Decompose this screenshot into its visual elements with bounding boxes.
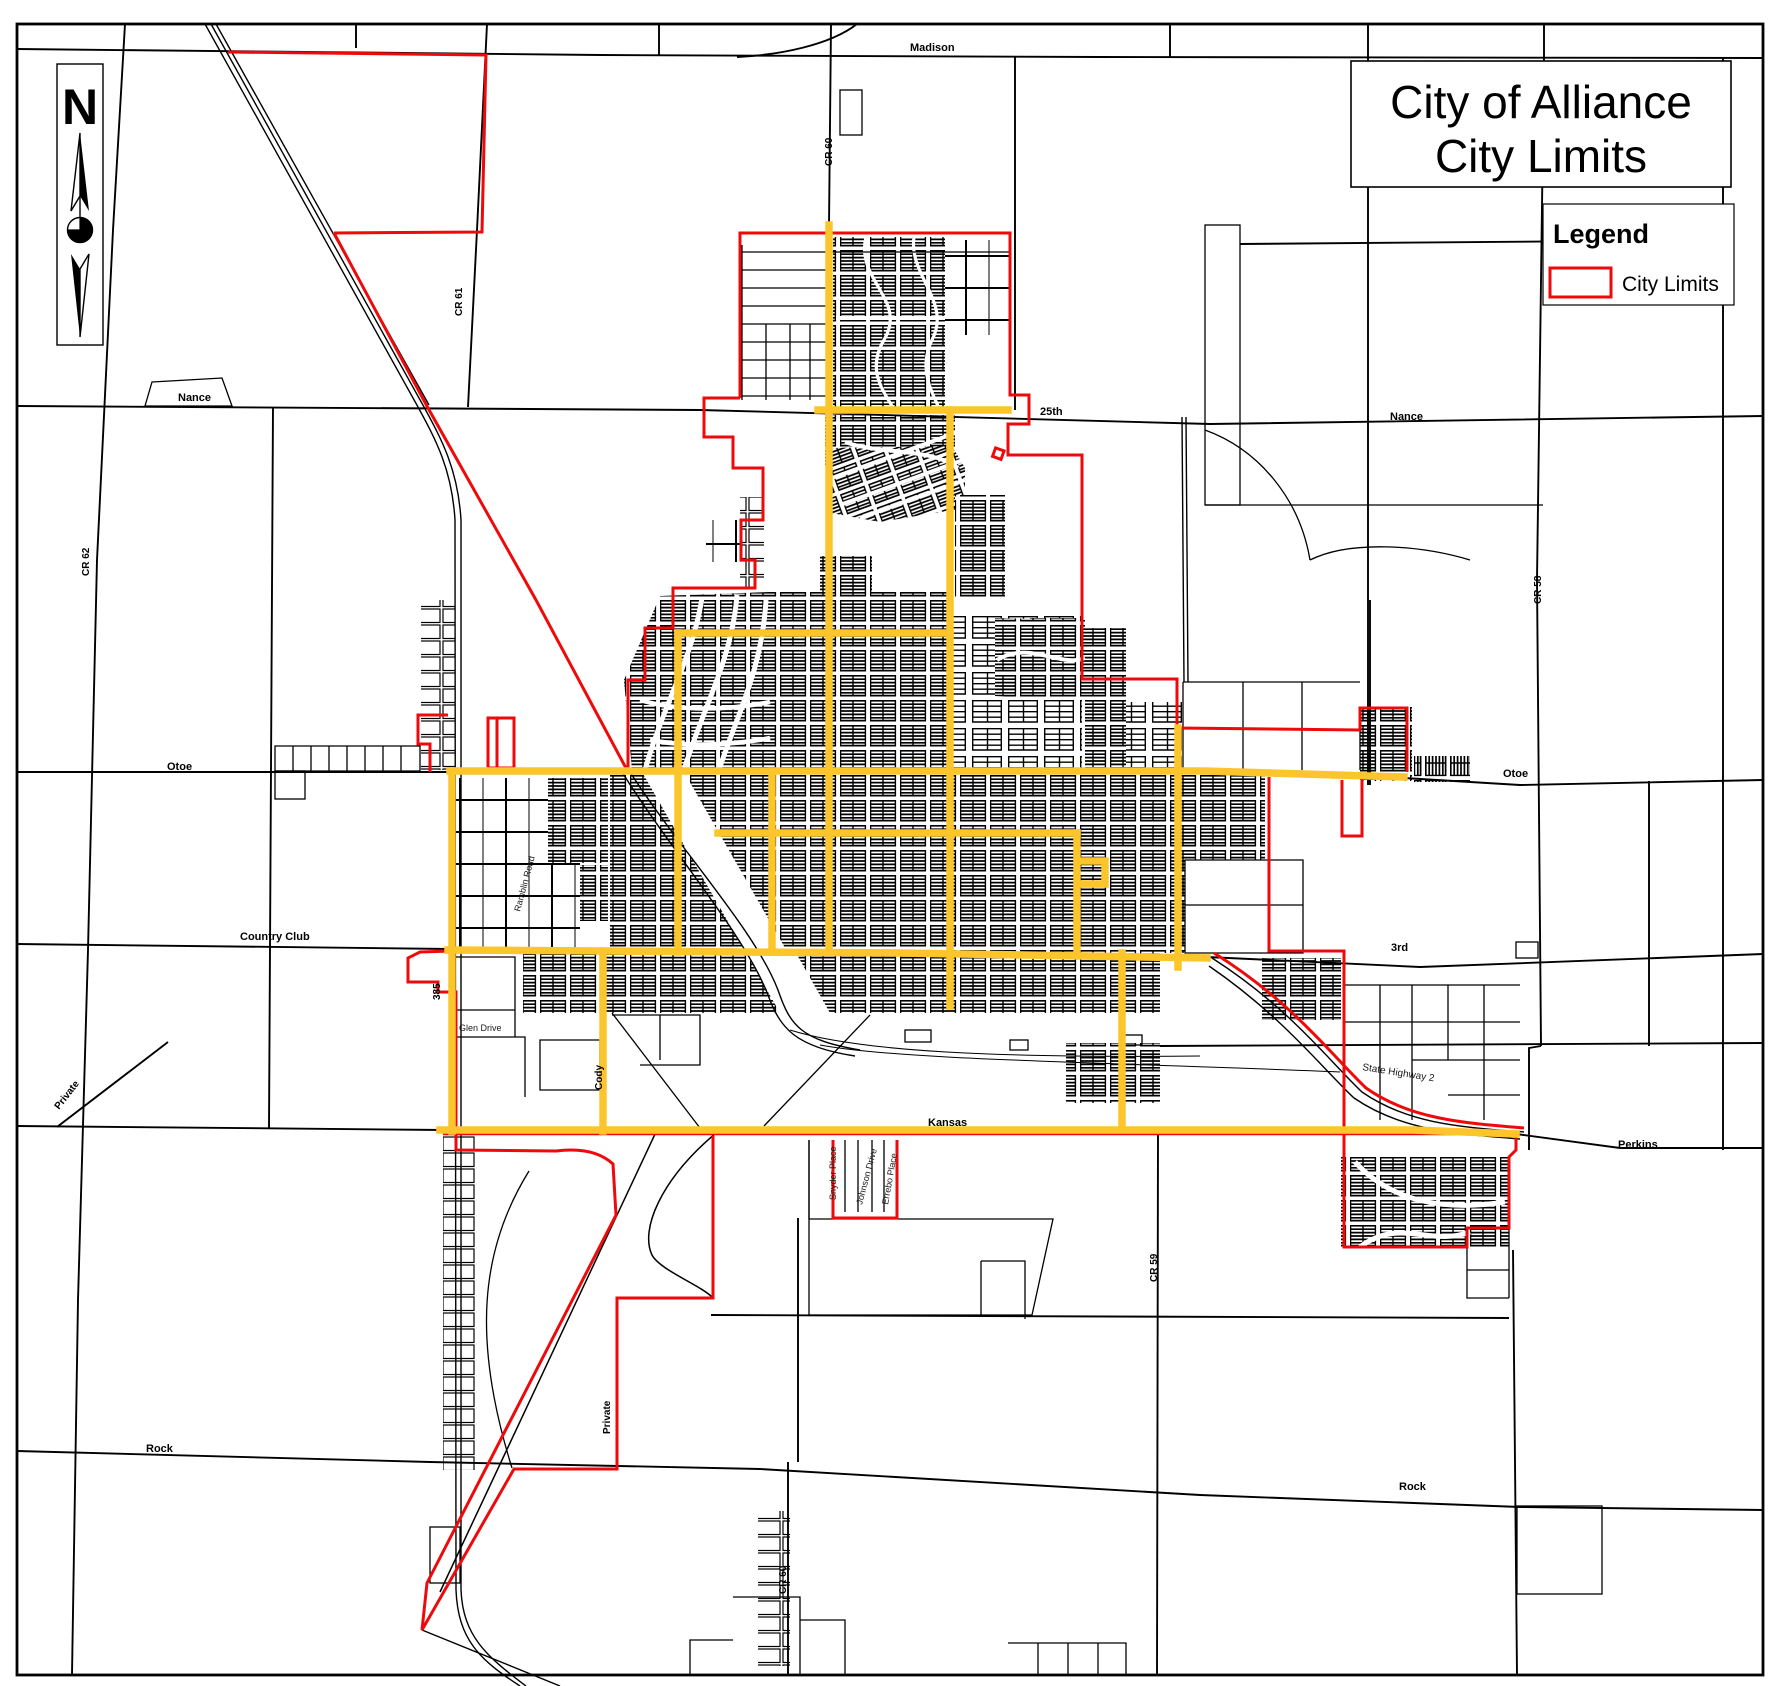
svg-text:385: 385 [432,983,443,1000]
svg-text:Kansas: Kansas [928,1117,967,1129]
svg-text:Snyder Place: Snyder Place [828,1146,838,1200]
svg-text:CR 60: CR 60 [778,1565,789,1594]
svg-text:Otoe: Otoe [1503,768,1528,780]
svg-text:Madison: Madison [910,42,955,54]
svg-text:CR 60: CR 60 [824,137,835,166]
svg-text:25th: 25th [1040,406,1063,418]
svg-text:CR 62: CR 62 [81,547,92,576]
svg-text:Rock: Rock [146,1443,174,1455]
svg-text:Cody: Cody [594,1065,605,1090]
svg-text:Nance: Nance [178,392,211,404]
svg-text:CR 59: CR 59 [1149,1253,1160,1282]
svg-text:3rd: 3rd [1391,942,1408,954]
svg-text:Country Club: Country Club [240,931,310,943]
svg-text:Perkins: Perkins [1618,1139,1658,1151]
svg-text:City Limits: City Limits [1435,130,1647,182]
svg-text:Rock: Rock [1399,1481,1427,1493]
svg-text:City Limits: City Limits [1622,273,1719,296]
svg-text:N: N [62,79,98,135]
svg-text:CR 61: CR 61 [454,287,465,316]
svg-text:Otoe: Otoe [167,761,192,773]
svg-text:Legend: Legend [1553,219,1649,249]
svg-text:Private: Private [602,1400,613,1434]
svg-text:Nance: Nance [1390,411,1423,423]
svg-text:City of Alliance: City of Alliance [1390,76,1692,128]
svg-text:Glen Drive: Glen Drive [459,1023,502,1033]
svg-text:CR 58: CR 58 [1533,575,1544,604]
